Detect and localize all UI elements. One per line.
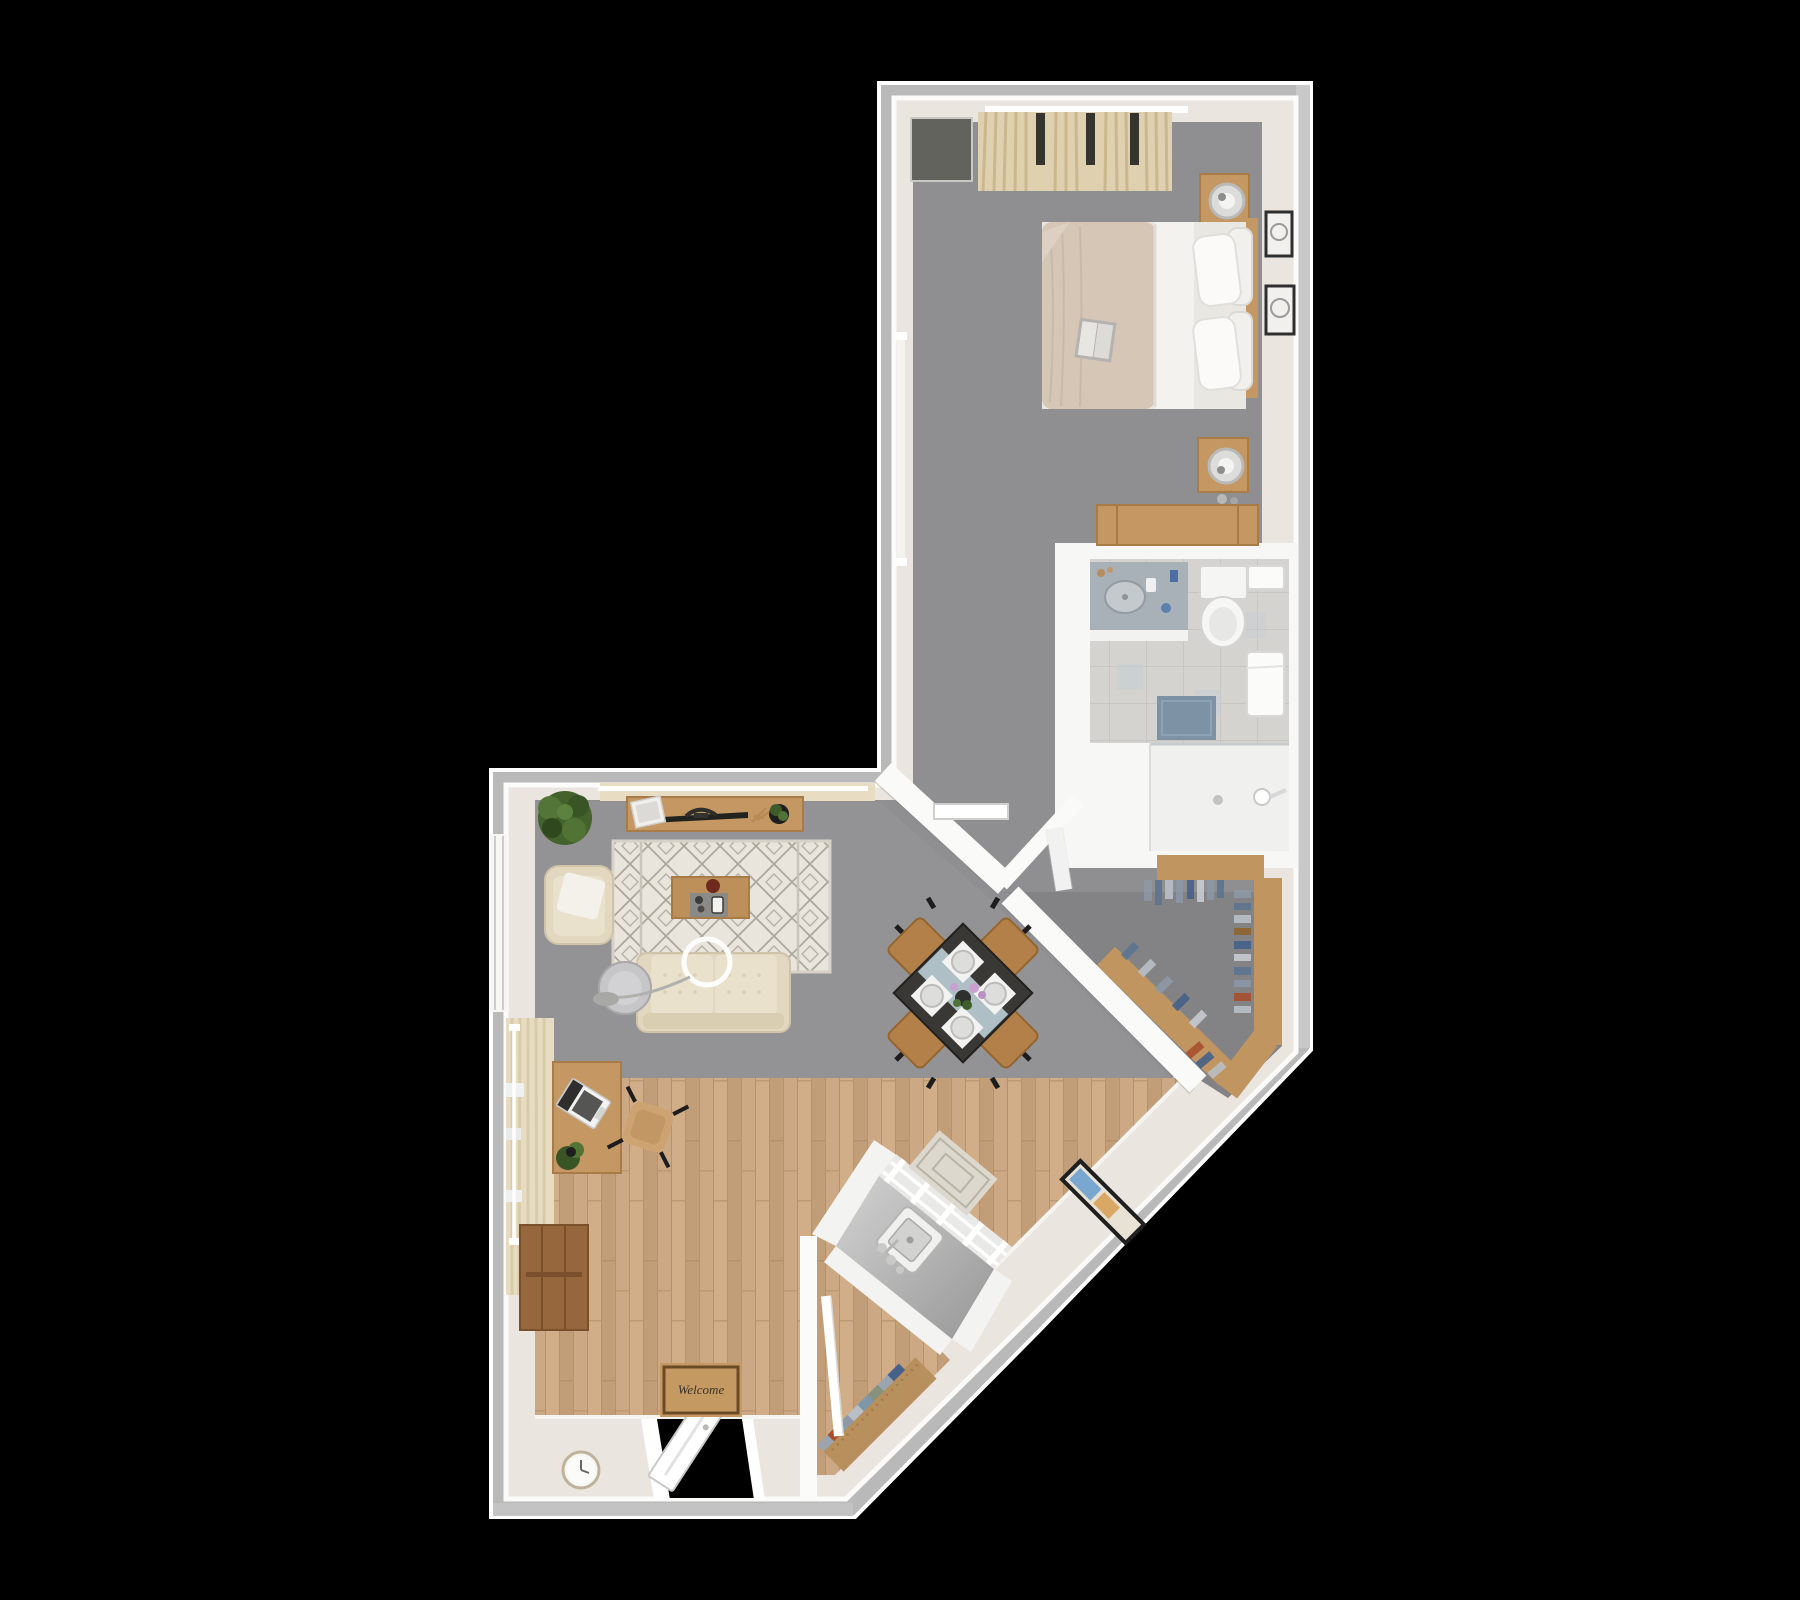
- svg-text:Welcome: Welcome: [678, 1382, 725, 1397]
